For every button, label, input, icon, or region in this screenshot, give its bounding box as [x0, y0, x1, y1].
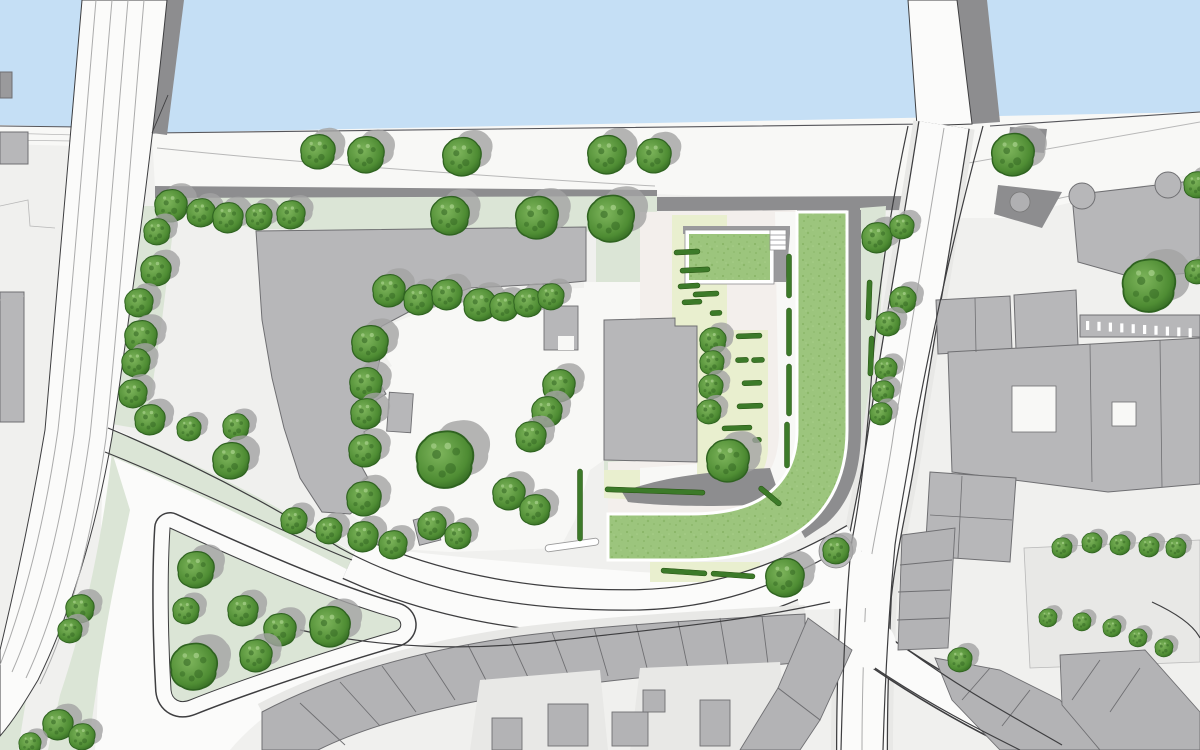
kiosk	[1010, 192, 1030, 212]
hedge-strip	[693, 291, 719, 297]
hedge-strip	[742, 380, 762, 386]
building-plaza-east	[604, 318, 697, 462]
plaza-corridor	[584, 282, 642, 322]
hedge-strip	[682, 299, 702, 305]
building-main-east	[948, 338, 1200, 492]
hedge-strip	[710, 310, 722, 316]
colonnade-tick	[1189, 328, 1192, 337]
hedge-strip	[735, 357, 748, 362]
hedge-strip	[674, 249, 700, 255]
hedge-strip	[785, 422, 790, 468]
hedge-strip	[578, 469, 583, 541]
building-upper-a	[936, 296, 1012, 354]
hedge-strip	[722, 425, 752, 431]
shed	[387, 392, 414, 433]
hedge-strip	[866, 280, 872, 320]
hedge-strip	[787, 308, 792, 356]
hedge-strip	[737, 403, 763, 409]
hedge-strip	[868, 336, 874, 376]
site-plan-canvas	[0, 0, 1200, 750]
hedge-strip	[787, 364, 792, 416]
hedge-strip	[678, 283, 700, 289]
colonnade-tick	[1166, 327, 1169, 336]
colonnade-tick	[1143, 325, 1146, 334]
hedge-strip	[751, 357, 764, 362]
colonnade-tick	[1177, 327, 1180, 336]
colonnade-tick	[1109, 323, 1112, 332]
hedge-strip	[736, 333, 762, 339]
hedge-strip	[787, 254, 792, 298]
building-upper-b	[1014, 290, 1078, 350]
shed-notch	[558, 336, 574, 350]
colonnade-tick	[1132, 324, 1135, 333]
colonnade-tick	[1086, 321, 1089, 330]
colonnade-tick	[1154, 326, 1157, 335]
colonnade-tick	[1097, 322, 1100, 331]
colonnade-tick	[1120, 323, 1123, 332]
lawn-pavilion	[683, 226, 790, 284]
